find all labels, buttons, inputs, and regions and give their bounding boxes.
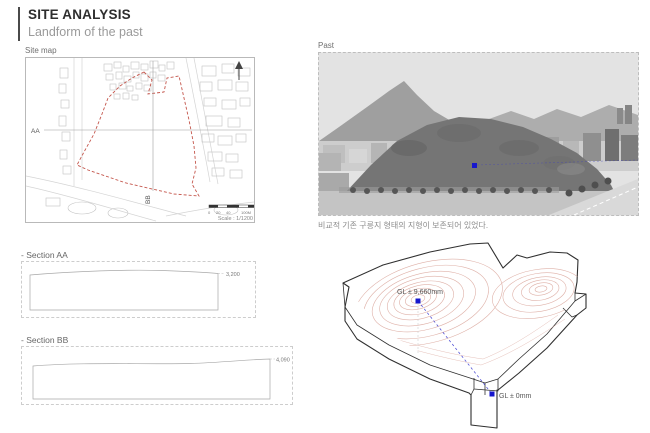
north-arrow-icon — [235, 61, 243, 80]
past-photo — [318, 52, 639, 216]
site-map: AA BB 0 20 40 100M Scale : — [25, 57, 255, 223]
scale-tick-20: 20 — [216, 210, 221, 215]
terrain-model: GL ± 9,660mm GL ± 0mm — [333, 237, 640, 433]
map-scale-bar: 0 20 40 100M Scale : 1/1200 — [208, 205, 254, 222]
past-photo-image — [319, 53, 638, 215]
map-scale-text: Scale : 1/1200 — [218, 216, 253, 222]
section-bb-drawing: 4,090 — [22, 347, 292, 404]
section-bb-box: 4,090 — [21, 346, 293, 405]
section-aa-label: - Section AA — [21, 250, 68, 260]
section-line-aa: AA — [31, 128, 252, 135]
section-bb-height: 4,090 — [276, 358, 290, 364]
slide: SITE ANALYSIS Landform of the past Site … — [0, 0, 650, 433]
section-bb-label: - Section BB — [21, 335, 68, 345]
map-buildings — [46, 61, 250, 218]
site-map-label: Site map — [25, 46, 57, 55]
terrain-base-marker — [490, 392, 495, 397]
terrain-model-drawing: GL ± 9,660mm GL ± 0mm — [333, 237, 640, 433]
site-boundary — [77, 72, 199, 196]
scale-tick-40: 40 — [226, 210, 231, 215]
section-aa-drawing: 3,200 — [22, 262, 255, 317]
section-line-bb-label: BB — [145, 195, 152, 204]
terrain-outline — [343, 243, 586, 428]
page-header: SITE ANALYSIS Landform of the past — [18, 7, 143, 41]
terrain-peak-label: GL ± 9,660mm — [397, 289, 443, 296]
section-aa-height: 3,200 — [226, 272, 240, 278]
past-caption: 비교적 기존 구릉지 형태의 지형이 보존되어 있었다. — [318, 220, 488, 231]
photo-marker-dot — [472, 163, 477, 168]
map-roads — [26, 58, 254, 221]
section-aa-box: 3,200 — [21, 261, 256, 318]
section-line-bb: BB — [145, 61, 153, 204]
scale-tick-100: 100M — [241, 210, 251, 215]
site-map-drawing: AA BB 0 20 40 100M Scale : — [26, 58, 254, 222]
terrain-peak-marker — [416, 299, 421, 304]
page-title: SITE ANALYSIS — [28, 7, 143, 24]
past-label: Past — [318, 41, 334, 50]
page-subtitle: Landform of the past — [28, 25, 143, 41]
section-line-aa-label: AA — [31, 128, 40, 135]
terrain-base-label: GL ± 0mm — [499, 393, 532, 400]
scale-tick-0: 0 — [208, 210, 211, 215]
